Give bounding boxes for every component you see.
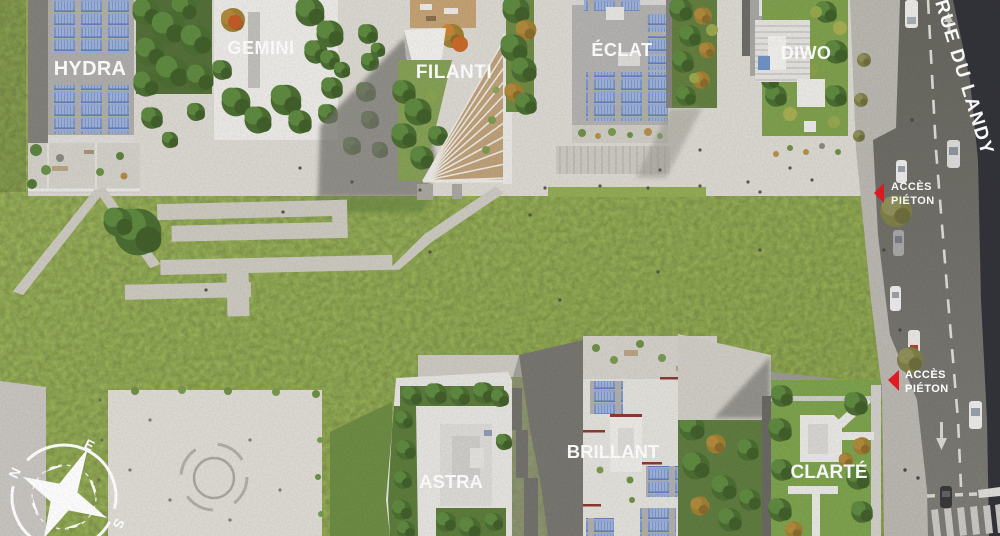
svg-text:ACCÈS: ACCÈS bbox=[905, 368, 946, 381]
svg-text:PIÉTON: PIÉTON bbox=[905, 382, 949, 395]
